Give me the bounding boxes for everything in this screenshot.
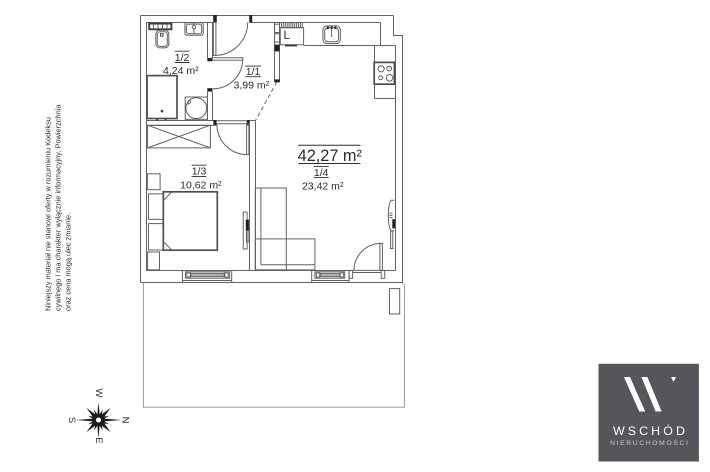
svg-text:Niniejszy materiał nie stanowi: Niniejszy materiał nie stanowi oferty w …: [44, 117, 53, 311]
svg-text:1/3: 1/3: [192, 166, 207, 178]
svg-text:1/2: 1/2: [175, 52, 190, 64]
svg-text:1/1: 1/1: [246, 66, 261, 78]
svg-text:N: N: [120, 417, 131, 424]
svg-text:oraz cena mogą ulec zmianie.: oraz cena mogą ulec zmianie.: [64, 213, 73, 311]
svg-text:cywilnego i ma charakter wyłąc: cywilnego i ma charakter wyłącznie infor…: [54, 104, 63, 311]
svg-text:1/4: 1/4: [314, 167, 329, 179]
svg-text:4,24 m²: 4,24 m²: [163, 65, 199, 77]
svg-text:P: P: [187, 100, 191, 107]
svg-text:W: W: [93, 389, 104, 398]
svg-text:L: L: [284, 30, 291, 42]
svg-text:E: E: [93, 437, 104, 443]
svg-text:S: S: [66, 417, 77, 423]
svg-text:3,99 m²: 3,99 m²: [233, 80, 269, 92]
svg-text:NIERUCHOMOŚCI: NIERUCHOMOŚCI: [610, 438, 689, 447]
svg-text:WSCHÓD: WSCHÓD: [613, 423, 688, 438]
svg-text:42,27 m²: 42,27 m²: [298, 147, 363, 165]
svg-text:10,62 m²: 10,62 m²: [180, 179, 222, 191]
svg-text:23,42 m²: 23,42 m²: [302, 180, 344, 192]
